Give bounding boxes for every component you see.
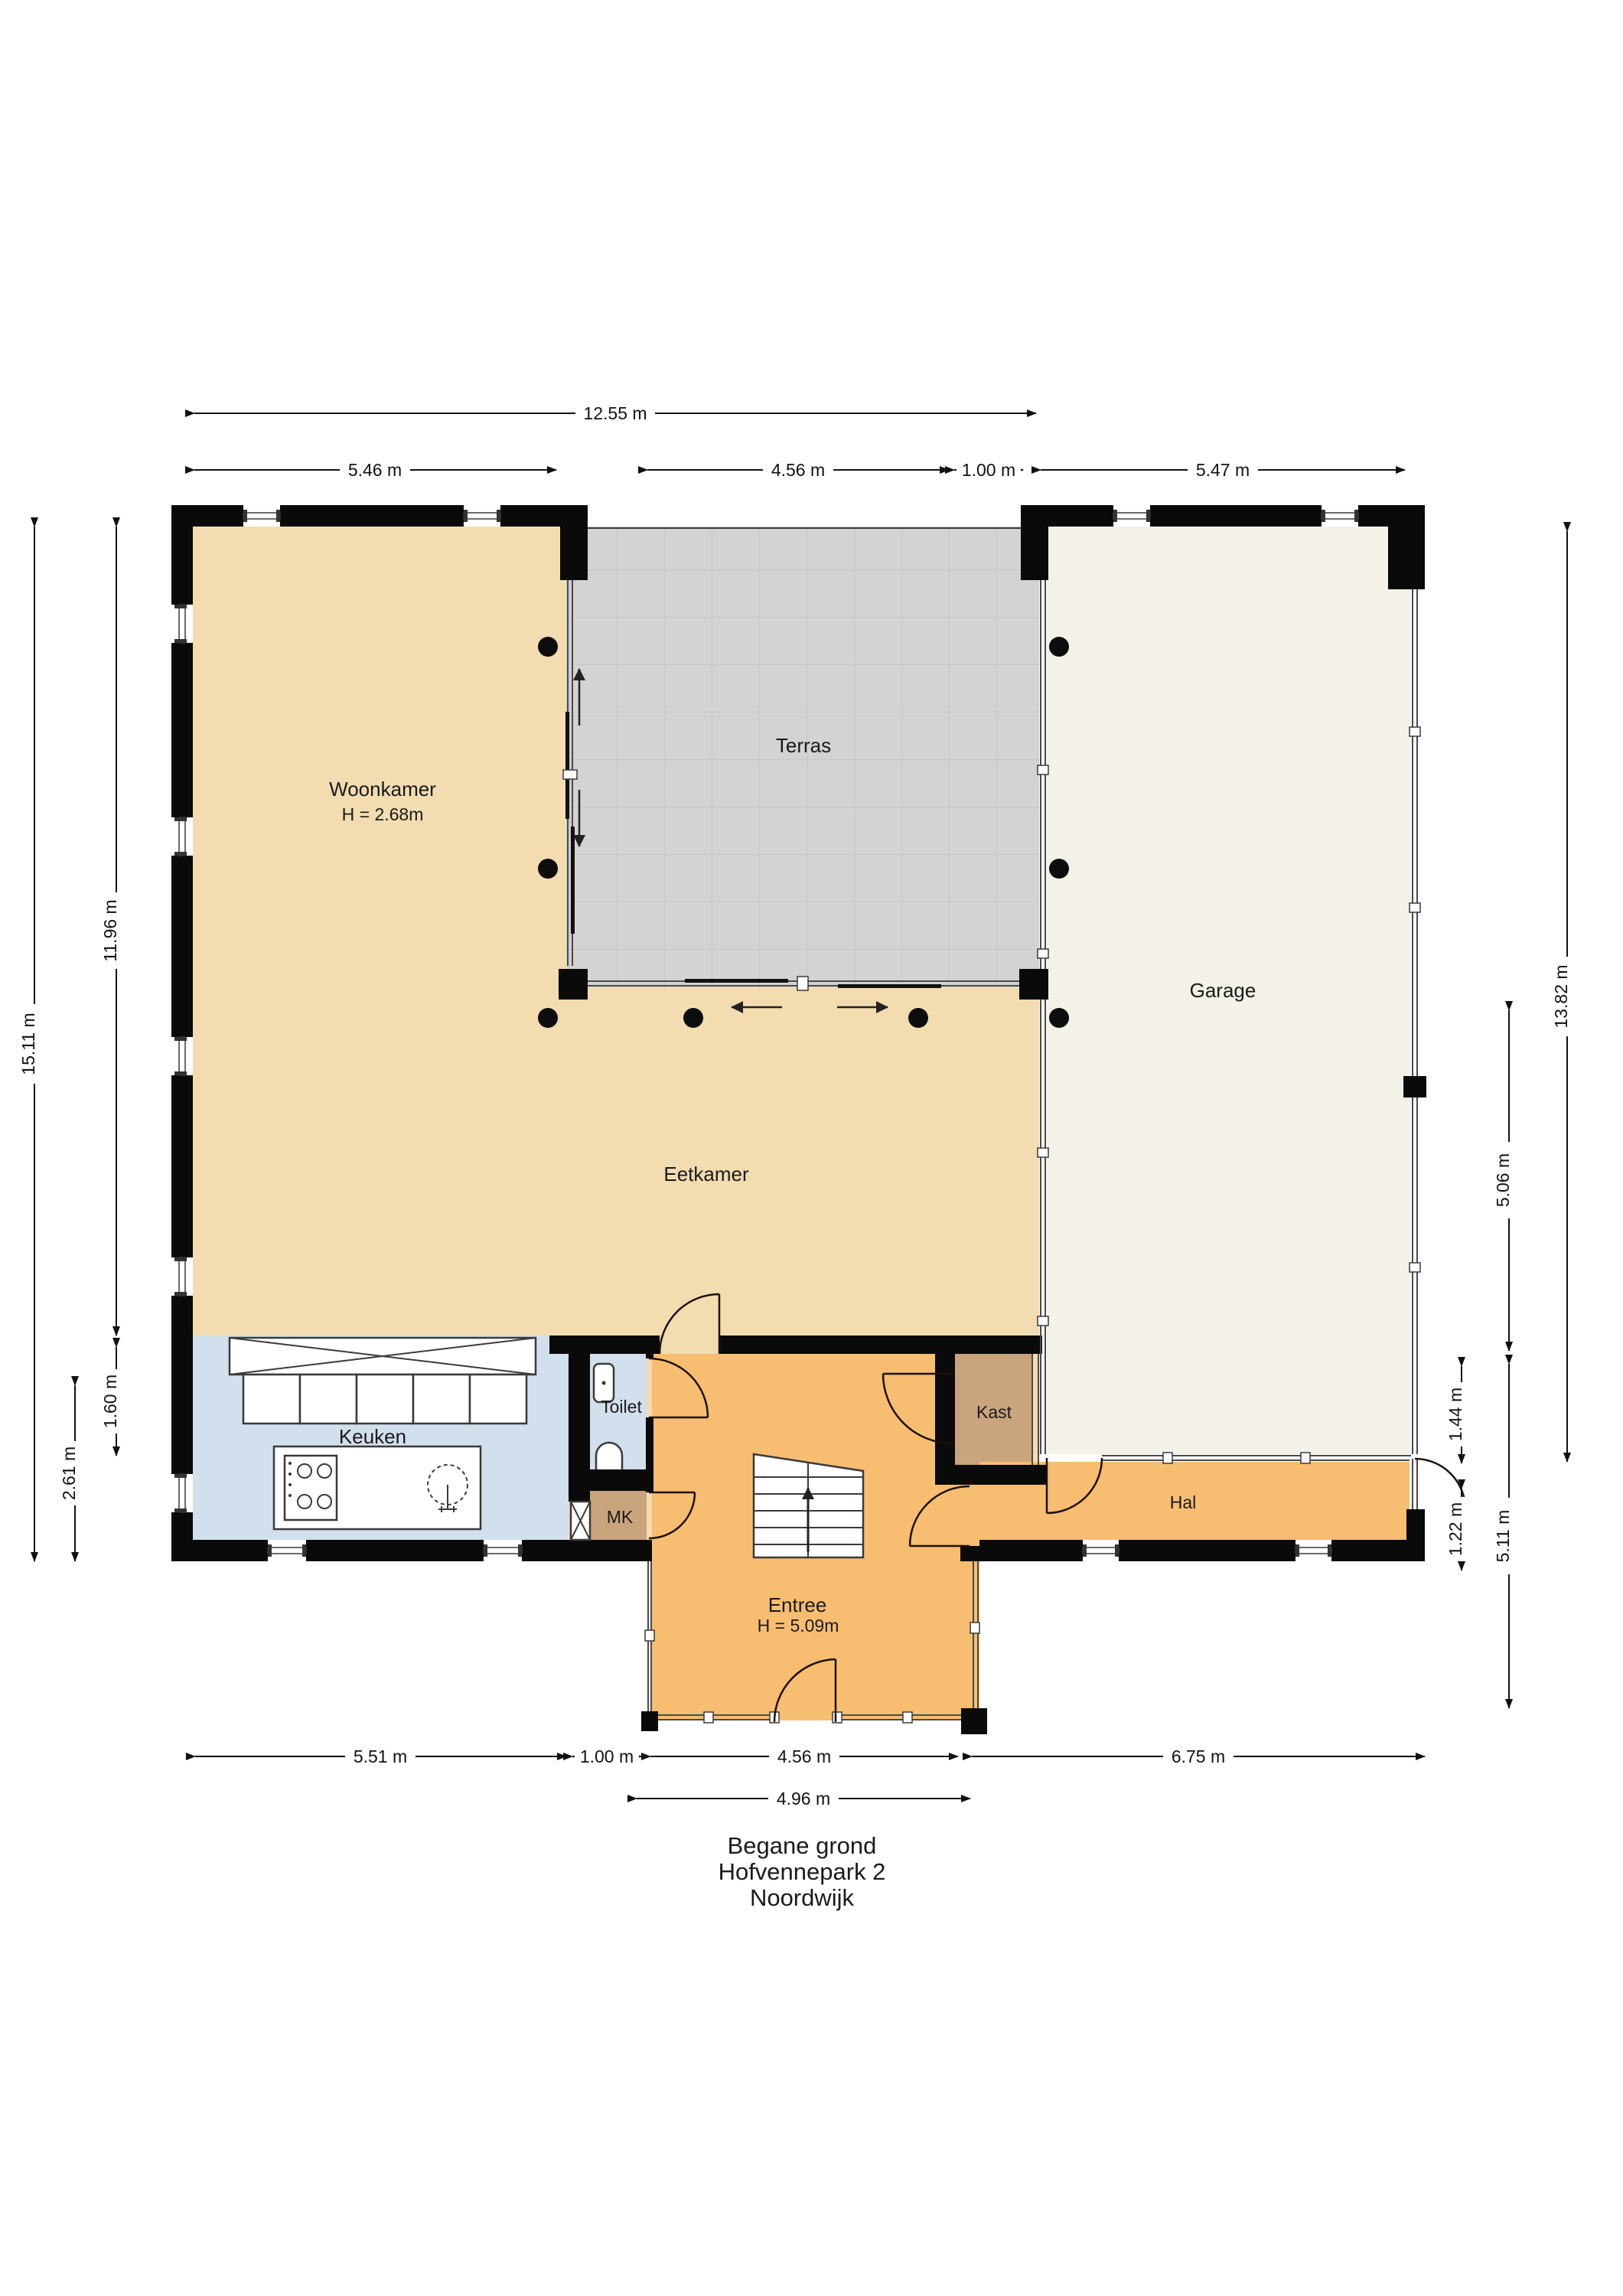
- wall-left-5: [171, 1296, 193, 1474]
- wall-kast-bottom: [935, 1465, 1047, 1485]
- window: [484, 1540, 522, 1561]
- svg-text:1.00 m: 1.00 m: [962, 460, 1015, 480]
- svg-text:13.82 m: 13.82 m: [1551, 964, 1571, 1028]
- column-dot: [538, 637, 558, 657]
- window: [171, 1474, 193, 1512]
- dim-top-terras: 4.56 m: [647, 459, 949, 481]
- svg-text:4.56 m: 4.56 m: [777, 1746, 831, 1766]
- wall-garage-top-3: [1358, 505, 1425, 527]
- wall-toilet-right-2: [646, 1417, 653, 1492]
- window: [171, 605, 193, 643]
- window: [464, 505, 500, 527]
- wall-bottom-2: [306, 1540, 484, 1561]
- wall-hal-bottom-1: [979, 1540, 1083, 1561]
- sliding-panel: [571, 827, 575, 934]
- terras-post-tl: [560, 505, 588, 580]
- wall-left-4: [171, 1075, 193, 1257]
- mullion: [1163, 1453, 1172, 1463]
- wall-keuken-toilet: [569, 1336, 590, 1502]
- shaft-mk: [571, 1502, 590, 1540]
- wall-hal-bottom-2: [1119, 1540, 1295, 1561]
- svg-text:1.60 m: 1.60 m: [100, 1375, 120, 1428]
- svg-text:5.11 m: 5.11 m: [1493, 1510, 1513, 1563]
- dim-right-kast: 1.44 m: [1445, 1366, 1472, 1463]
- window: [1083, 1540, 1119, 1561]
- label-toilet: Toilet: [601, 1397, 642, 1417]
- wall-eetkamer-entree-1: [549, 1336, 660, 1354]
- window: [243, 505, 280, 527]
- dim-bottom-entree-inner: 4.96 m: [637, 1788, 970, 1809]
- wall-garage-top-2: [1150, 505, 1322, 527]
- label-mk: MK: [607, 1507, 634, 1527]
- dim-top-woonkamer: 5.46 m: [194, 459, 556, 481]
- label-entree: Entree: [768, 1593, 827, 1616]
- floor-plan-page: Woonkamer H = 2.68m Terras Garage Eetkam…: [0, 0, 1623, 2296]
- dim-left-keuken: 2.61 m: [59, 1385, 86, 1561]
- kitchen-island: [274, 1446, 481, 1529]
- svg-text:5.06 m: 5.06 m: [1493, 1153, 1513, 1207]
- mullion: [1038, 1148, 1048, 1157]
- room-terras-floor: [566, 527, 1039, 987]
- column-dot: [1049, 1008, 1069, 1028]
- dim-bottom-entree: 4.56 m: [650, 1746, 958, 1767]
- terras-post-br: [1019, 969, 1048, 1000]
- window: [1113, 505, 1150, 527]
- window: [268, 1540, 306, 1561]
- sliding-panel: [565, 712, 569, 819]
- mullion: [903, 1712, 912, 1723]
- wall-left-2: [171, 643, 193, 817]
- svg-text:12.55 m: 12.55 m: [583, 403, 647, 423]
- dim-right-overall: 13.82 m: [1551, 531, 1578, 1462]
- dim-right-garage-lower: 5.06 m: [1493, 1010, 1520, 1351]
- svg-text:1.22 m: 1.22 m: [1445, 1502, 1465, 1556]
- entree-corner-post-left: [641, 1711, 658, 1731]
- wall-entree-hal: [960, 1546, 979, 1561]
- label-woonkamer: Woonkamer: [329, 778, 436, 801]
- dim-top-overall: 12.55 m: [194, 403, 1036, 424]
- sliding-panel: [685, 979, 788, 983]
- window: [1295, 1540, 1331, 1561]
- entree-corner-post-right: [961, 1708, 987, 1734]
- wall-kast-left: [935, 1354, 955, 1465]
- garage-right-post: [1403, 1076, 1426, 1097]
- dim-left-overall: 15.11 m: [18, 527, 45, 1561]
- mullion: [970, 1623, 979, 1633]
- sliding-panel: [838, 984, 941, 988]
- mullion: [1038, 949, 1048, 958]
- dim-left-woonkamer: 11.96 m: [100, 527, 127, 1336]
- title-city: Noordwijk: [750, 1884, 855, 1911]
- column-dot: [1049, 637, 1069, 657]
- mullion: [1410, 727, 1420, 736]
- svg-text:4.96 m: 4.96 m: [777, 1789, 830, 1808]
- wall-eetkamer-entree-2: [719, 1336, 1042, 1354]
- dim-right-hal: 1.22 m: [1445, 1489, 1472, 1570]
- label-eetkamer: Eetkamer: [663, 1163, 749, 1186]
- mullion: [1410, 1263, 1420, 1272]
- mullion: [1038, 765, 1048, 775]
- svg-text:6.75 m: 6.75 m: [1172, 1746, 1225, 1766]
- mullion: [645, 1630, 654, 1641]
- window: [171, 1037, 193, 1075]
- column-dot: [683, 1008, 703, 1028]
- label-hal: Hal: [1170, 1492, 1197, 1512]
- label-kast: Kast: [976, 1402, 1012, 1422]
- wall-left-3: [171, 856, 193, 1037]
- mullion: [1410, 903, 1420, 912]
- wall-top-2: [280, 505, 464, 527]
- window: [171, 817, 193, 856]
- column-dot: [538, 859, 558, 879]
- mullion: [797, 977, 808, 990]
- mullion: [563, 770, 577, 779]
- svg-text:5.51 m: 5.51 m: [354, 1746, 407, 1766]
- dim-top-gap: 1.00 m: [954, 459, 1023, 481]
- label-woonkamer-height: H = 2.68m: [342, 804, 424, 824]
- svg-text:4.56 m: 4.56 m: [771, 460, 825, 480]
- wall-hal-right-post: [1406, 1509, 1425, 1561]
- svg-text:1.00 m: 1.00 m: [580, 1746, 634, 1766]
- label-terras: Terras: [776, 734, 831, 757]
- svg-text:11.96 m: 11.96 m: [100, 899, 120, 961]
- dim-bottom-hal: 6.75 m: [972, 1746, 1425, 1767]
- svg-text:1.44 m: 1.44 m: [1445, 1388, 1465, 1441]
- wall-bottom-1: [171, 1540, 268, 1561]
- dim-right-hal-entree: 5.11 m: [1493, 1364, 1520, 1708]
- dim-top-garage: 5.47 m: [1041, 459, 1405, 481]
- dim-bottom-keuken: 5.51 m: [195, 1746, 566, 1767]
- title-floor: Begane grond: [728, 1832, 877, 1859]
- wall-garage-top-corner: [1388, 527, 1425, 589]
- column-dot: [538, 1008, 558, 1028]
- column-dot: [908, 1008, 928, 1028]
- label-garage: Garage: [1190, 979, 1256, 1002]
- title-address: Hofvennepark 2: [719, 1858, 886, 1885]
- svg-text:5.47 m: 5.47 m: [1196, 460, 1250, 480]
- wall-bottom-3: [522, 1540, 652, 1561]
- svg-text:2.61 m: 2.61 m: [59, 1446, 79, 1500]
- window: [1322, 505, 1358, 527]
- svg-text:15.11 m: 15.11 m: [18, 1013, 38, 1075]
- wall-garage-top-1: [1048, 505, 1113, 527]
- wall-left-1: [171, 505, 193, 605]
- kitchen-counter: [230, 1338, 536, 1424]
- title-block: Begane grond Hofvennepark 2 Noordwijk: [719, 1832, 886, 1911]
- hob-icon: [285, 1456, 337, 1520]
- floor-plan: Woonkamer H = 2.68m Terras Garage Eetkam…: [0, 0, 1623, 2296]
- mullion: [704, 1712, 713, 1723]
- wall-toilet-mk: [590, 1469, 647, 1491]
- window: [171, 1257, 193, 1296]
- terras-post-tr: [1021, 505, 1048, 580]
- stairs: [754, 1454, 863, 1557]
- dim-left-toilet: 1.60 m: [100, 1347, 127, 1456]
- dim-bottom-gap: 1.00 m: [572, 1746, 641, 1767]
- mullion: [833, 1712, 842, 1723]
- terras-post-bl: [559, 969, 588, 1000]
- label-keuken: Keuken: [339, 1425, 406, 1448]
- svg-text:5.46 m: 5.46 m: [348, 460, 402, 480]
- mullion: [1038, 1316, 1048, 1326]
- mullion: [1301, 1453, 1310, 1463]
- column-dot: [1049, 859, 1069, 879]
- toilet-bowl-icon: [596, 1443, 622, 1469]
- label-entree-height: H = 5.09m: [758, 1616, 839, 1636]
- wall-top-3: [500, 505, 566, 527]
